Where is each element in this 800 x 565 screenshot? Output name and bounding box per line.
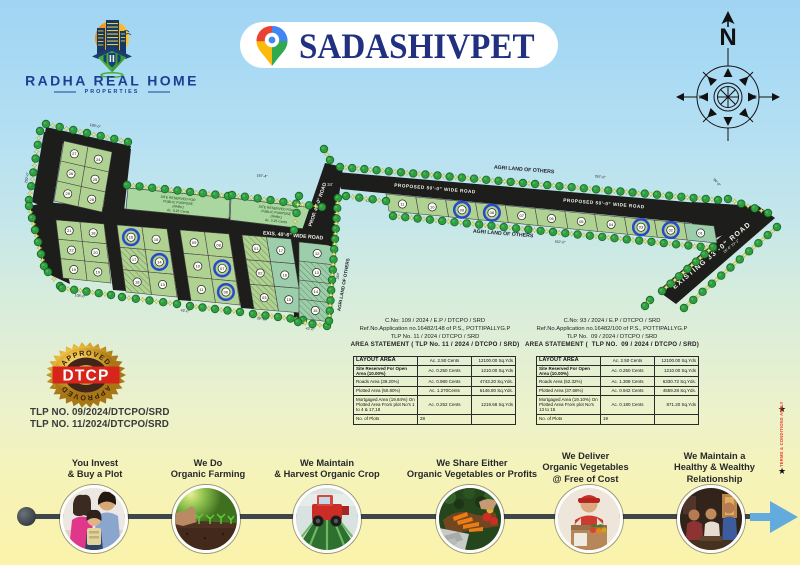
svg-text:18: 18: [91, 230, 96, 235]
svg-text:14: 14: [314, 289, 319, 294]
svg-text:13: 13: [160, 282, 165, 287]
svg-text:02: 02: [669, 228, 674, 233]
svg-text:180'-0": 180'-0": [89, 123, 101, 129]
svg-text:06: 06: [549, 216, 554, 221]
svg-text:06: 06: [224, 290, 229, 295]
svg-text:17: 17: [279, 248, 284, 253]
svg-text:21: 21: [67, 228, 72, 233]
svg-text:08: 08: [216, 242, 221, 247]
svg-text:03: 03: [639, 225, 644, 230]
svg-text:12: 12: [315, 251, 320, 256]
svg-text:29: 29: [65, 191, 70, 196]
svg-text:03: 03: [262, 295, 267, 300]
svg-text:01: 01: [698, 231, 703, 236]
svg-text:07: 07: [519, 213, 524, 218]
svg-text:14: 14: [157, 259, 162, 264]
svg-text:DTCP: DTCP: [63, 368, 110, 385]
svg-text:15: 15: [287, 297, 292, 302]
svg-text:08: 08: [490, 210, 495, 215]
svg-text:20: 20: [93, 250, 98, 255]
svg-text:15: 15: [313, 308, 318, 313]
svg-text:13: 13: [314, 270, 319, 275]
svg-text:15: 15: [154, 237, 159, 242]
svg-text:28: 28: [89, 197, 94, 202]
svg-text:25: 25: [93, 177, 98, 182]
svg-text:292'-0": 292'-0": [24, 171, 30, 183]
svg-text:04: 04: [609, 222, 614, 227]
svg-text:26: 26: [69, 171, 74, 176]
svg-text:167'-4": 167'-4": [256, 173, 268, 178]
svg-text:34': 34': [327, 182, 333, 187]
svg-text:01: 01: [254, 246, 259, 251]
svg-text:09: 09: [460, 207, 465, 212]
svg-text:AGRI LAND OF OTHERS: AGRI LAND OF OTHERS: [336, 258, 350, 312]
svg-text:09: 09: [192, 240, 197, 245]
svg-text:19: 19: [72, 267, 77, 272]
svg-text:AGRI LAND OF OTHERS: AGRI LAND OF OTHERS: [494, 165, 555, 176]
svg-text:17: 17: [132, 257, 137, 262]
svg-text:07: 07: [220, 266, 225, 271]
svg-text:19: 19: [96, 270, 101, 275]
svg-text:05: 05: [579, 219, 584, 224]
svg-text:16: 16: [283, 273, 288, 278]
svg-text:22: 22: [69, 248, 74, 253]
svg-text:797'-0": 797'-0": [594, 175, 606, 180]
svg-text:264': 264': [336, 272, 341, 279]
svg-text:16: 16: [129, 235, 134, 240]
svg-text:162'-0": 162'-0": [554, 240, 566, 245]
svg-text:24: 24: [96, 157, 101, 162]
svg-text:TERMS & CONDITIONS APPLY: TERMS & CONDITIONS APPLY: [779, 401, 784, 467]
svg-text:18: 18: [135, 280, 140, 285]
svg-text:10: 10: [430, 204, 435, 209]
svg-text:10: 10: [196, 264, 201, 269]
svg-text:27: 27: [72, 151, 77, 156]
svg-text:02: 02: [258, 271, 263, 276]
svg-text:94'-0": 94'-0": [712, 178, 721, 188]
